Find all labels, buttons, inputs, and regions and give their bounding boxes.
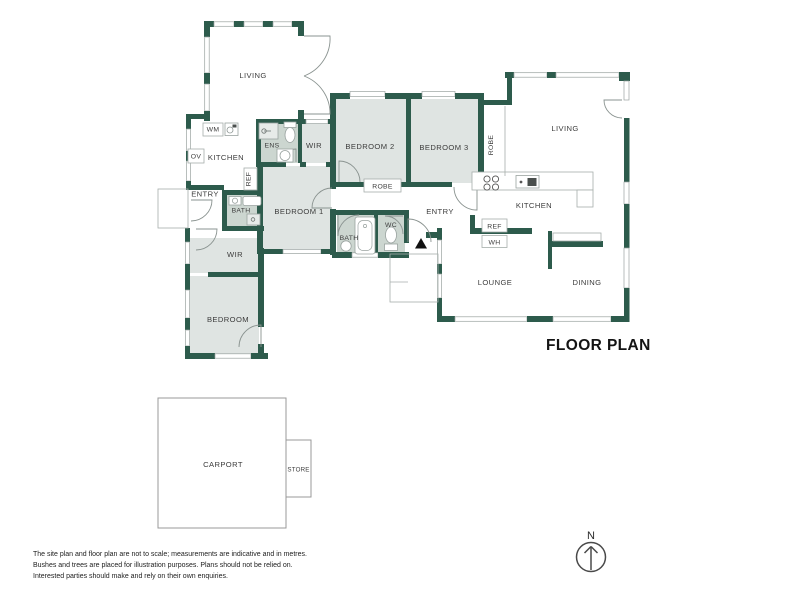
plan-title: FLOOR PLAN bbox=[546, 337, 651, 354]
room-bedroom-2 bbox=[336, 99, 407, 183]
bedroom1-label: BEDROOM 1 bbox=[274, 207, 323, 216]
store-label: STORE bbox=[287, 467, 309, 474]
wir-lower-label: WIR bbox=[227, 250, 243, 259]
toilet-icon bbox=[284, 122, 296, 128]
living-right-label: LIVING bbox=[551, 124, 578, 133]
porch-outline bbox=[390, 254, 438, 302]
bathtub-icon bbox=[243, 197, 261, 206]
dining-label: DINING bbox=[573, 278, 602, 287]
door-arc bbox=[604, 100, 622, 118]
bedroom2-label: BEDROOM 2 bbox=[345, 142, 394, 151]
bedroom3-label: BEDROOM 3 bbox=[419, 143, 468, 152]
wm-label: WM bbox=[207, 127, 220, 134]
entry-right-label: ENTRY bbox=[426, 207, 454, 216]
entry-left-label: ENTRY bbox=[191, 190, 219, 199]
disclaimer-line-2: Bushes and trees are placed for illustra… bbox=[33, 562, 293, 569]
floor-plan-drawing: LIVING WM OV KITCHEN ENS WIR BEDROOM 2 B… bbox=[0, 0, 800, 600]
porch-outline bbox=[158, 189, 188, 228]
ref-left-label: REF bbox=[246, 172, 253, 187]
room-bedroom-3 bbox=[411, 99, 479, 183]
disclaimer: The site plan and floor plan are not to … bbox=[33, 551, 307, 580]
wir-top-label: WIR bbox=[306, 141, 322, 150]
bath-left-label: BATH bbox=[232, 208, 251, 215]
robe-vertical-label: ROBE bbox=[488, 135, 495, 156]
door-arc bbox=[191, 200, 212, 221]
door-arc bbox=[408, 219, 431, 242]
disclaimer-line-1: The site plan and floor plan are not to … bbox=[33, 551, 307, 558]
counter bbox=[553, 233, 601, 241]
bath-main-label: BATH bbox=[340, 235, 359, 242]
door-arc bbox=[304, 76, 330, 114]
living-top-label: LIVING bbox=[239, 71, 266, 80]
ens-label: ENS bbox=[265, 143, 280, 150]
door-arc bbox=[304, 36, 330, 76]
door-arc bbox=[454, 187, 477, 210]
floor-plan-page: LIVING WM OV KITCHEN ENS WIR BEDROOM 2 B… bbox=[0, 0, 800, 600]
kitchen-left-label: KITCHEN bbox=[208, 153, 244, 162]
bedroom-rear-label: BEDROOM bbox=[207, 315, 249, 324]
sink-icon bbox=[516, 176, 539, 189]
ref-right-label: REF bbox=[487, 224, 502, 231]
compass-north-label: N bbox=[587, 530, 595, 542]
toilet-icon bbox=[386, 227, 397, 243]
lounge-label: LOUNGE bbox=[478, 278, 512, 287]
compass-icon bbox=[577, 543, 606, 572]
robe-hall-label: ROBE bbox=[372, 184, 393, 191]
wh-label: WH bbox=[489, 240, 501, 247]
ov-label: OV bbox=[191, 154, 202, 161]
carport-label: CARPORT bbox=[203, 460, 243, 469]
disclaimer-line-3: Interested parties should make and rely … bbox=[33, 573, 228, 580]
room-wir-lower bbox=[190, 238, 258, 273]
kitchen-right-label: KITCHEN bbox=[516, 201, 552, 210]
entry-marker-icon bbox=[415, 238, 427, 249]
basin-icon bbox=[341, 241, 351, 251]
shower-icon bbox=[247, 214, 260, 225]
wc-label: WC bbox=[385, 222, 397, 229]
kitchen-bench-return bbox=[577, 190, 593, 207]
